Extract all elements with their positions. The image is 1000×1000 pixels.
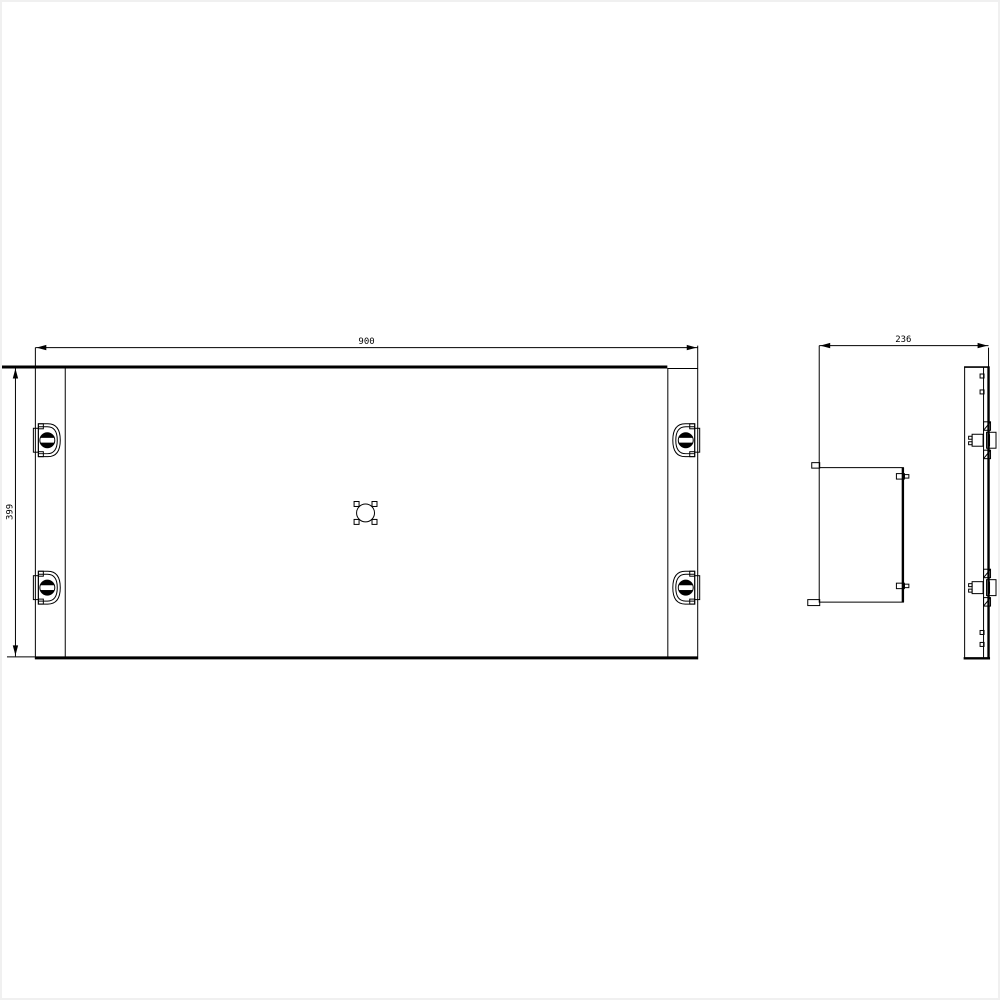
width-dimension-label: 900: [358, 337, 374, 347]
knockout-icon: [354, 501, 377, 524]
clip-nub: [904, 584, 908, 587]
side-view: 236: [808, 335, 996, 659]
quarter-turn-lock-icon: [673, 571, 700, 604]
depth-arrow-left: [820, 343, 830, 348]
knockout-corner-square: [372, 519, 377, 524]
quarter-turn-lock-icon: [673, 424, 700, 457]
technical-drawing: 900 399: [2, 2, 998, 998]
depth-dimension-label: 236: [895, 335, 911, 345]
cover-panel: [964, 367, 996, 659]
knockout-corner-square: [354, 519, 359, 524]
knockout-corner-square: [354, 501, 359, 506]
right-lock-column: [673, 424, 700, 604]
knockout-corner-square: [372, 501, 377, 506]
wall-tab-top: [812, 463, 820, 468]
width-dimension: 900: [35, 337, 697, 350]
height-dimension: 399: [5, 368, 18, 657]
drawing-sheet: 900 399: [0, 0, 1000, 1000]
quarter-turn-lock-icon: [33, 571, 60, 604]
width-arrow-left: [36, 345, 46, 350]
height-dimension-label: 399: [5, 504, 15, 520]
height-arrow-bottom: [13, 645, 18, 655]
depth-dimension: 236: [819, 335, 988, 366]
quarter-turn-lock-icon: [33, 424, 60, 457]
width-arrow-right: [687, 345, 697, 350]
side-lock-icon: [969, 569, 996, 606]
depth-arrow-right: [978, 343, 988, 348]
clip-nub: [904, 475, 908, 478]
front-view: 900 399: [2, 337, 700, 659]
wall-tab-bottom: [808, 600, 820, 606]
enclosure-body: [808, 346, 909, 606]
side-lock-icon: [969, 422, 996, 459]
height-arrow-top: [13, 369, 18, 379]
